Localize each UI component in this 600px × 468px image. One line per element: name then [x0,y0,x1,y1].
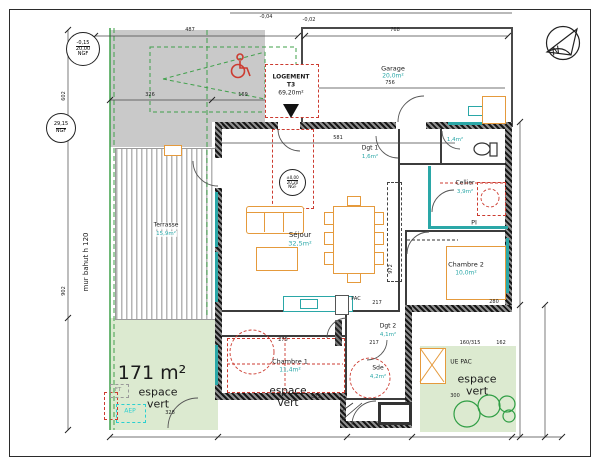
coffee-table [256,247,298,271]
window-ch2-right [506,238,509,293]
chair-right-1 [374,212,384,225]
green-right-l2: vert [466,386,488,399]
window-sejour-left-2 [215,252,218,302]
terrasse-label: Terrasse [153,223,180,230]
pac-unit-box [335,295,349,315]
parking-gray-area [110,30,265,122]
ue-pac-label: UE PAC [450,360,472,367]
wall-ch2-bottom [412,305,512,312]
chambre2-area: 10,0m² [455,271,477,278]
ngf3-l3: NGF [288,185,296,189]
ngf-marker-2: 29,15 NGF [46,113,76,143]
ft-label: FT [115,387,121,393]
green-center-l2: vert [277,397,298,409]
dining-table [333,206,375,274]
mur-bahut-note: mur bahut h 120 [82,233,90,292]
dim-169: 169 [238,93,248,99]
logement-line2: T3 [287,83,295,90]
dim-326: 326 [145,93,155,99]
dgt1-label: Dgt 1 [362,146,379,153]
logement-line1: LOGEMENT [273,75,310,82]
partition-ch2-top [405,230,505,232]
window-wc-top [448,122,482,125]
partition-dgt1-wc [440,129,442,165]
wardrobe-dark [335,320,342,346]
terrasse-area: 15,9m² [155,231,177,237]
dim-217a: 217 [372,301,382,307]
green-left-size: 171 m² [118,363,186,385]
dim-768: 768 [390,28,400,34]
cellier-area: 3,9m² [457,189,473,195]
partition-ch1-right [345,312,347,393]
dgt1-area: 1,6m² [362,154,378,160]
dim-972: 972 [388,264,394,274]
green-left-dim: 328 [165,411,175,417]
green-right-dim: 300 [450,394,460,400]
chambre1-area: 11,4m² [279,368,301,375]
dgt2-label: Dgt 2 [380,324,397,331]
chambre1-label: Chambre 1 [272,358,308,365]
dim-487: 487 [185,28,195,34]
sejour-area: 32,5m² [288,240,311,247]
floor-plan: LOGEMENT T3 69,20m² -0,15 20,00 NGF 29,1… [0,0,600,468]
sde-label: Sde [372,366,383,373]
partition-ch2-left [405,230,407,305]
wc-area: 1,4m² [447,137,463,143]
chair-top [347,196,361,206]
chair-left-3 [324,252,334,265]
terrasse-planter [164,145,182,156]
green-center-l1: espace [269,385,306,397]
kitchen-sink [300,299,318,309]
chair-right-3 [374,252,384,265]
ngf1-l3: NGF [78,52,89,57]
terrasse-door-opening [215,158,222,188]
window-ch1-left [215,345,218,385]
dim-217b: 217 [369,341,379,347]
aep-label: AEP [124,409,136,416]
dim-lvl1: -0,04 [260,15,273,21]
pi-label: PI [471,219,477,226]
chambre2-label: Chambre 2 [448,261,484,268]
green-center-dim: 873 [311,395,321,401]
dim-581: 581 [333,136,343,142]
chair-left-2 [324,232,334,245]
sofa-back-line [246,212,302,213]
garage-storage [482,96,506,124]
cellier-label: Cellier [455,181,474,188]
parking-gray-area-lower [110,122,212,147]
pac-label: PAC [351,297,361,303]
sde-area: 4,2m² [370,374,386,380]
window-sejour-left-1 [215,192,218,247]
logement-area: 69,20m² [278,91,303,98]
dim-756: 756 [385,81,395,87]
chair-bottom [347,273,361,283]
dim-lvl2: -0,02 [303,18,316,24]
dim-280: 280 [489,300,499,306]
sejour-label: Séjour [289,231,311,239]
dim-160-315: 160/315 [460,341,481,347]
sofa-divider-2 [283,212,284,232]
cellier-wall-bottom [428,226,508,229]
dgt2-area: 4,1m² [380,332,396,338]
washbasin [378,402,412,425]
partition-dgt1-bottom [398,163,505,165]
cellier-wall-left [428,166,431,228]
ngf-marker-1: -0,15 20,00 NGF [66,32,100,66]
partition-sde-bottom [345,398,405,400]
dim-902: 902 [61,286,67,296]
chair-left-1 [324,212,334,225]
ngf2-l2: NGF [56,128,67,134]
cellier-appliance-dashed [477,182,506,216]
dim-275: 275 [278,338,288,344]
entry-door-opening [278,122,300,129]
ngf-marker-3: ±0,00 20,20 NGF [279,169,306,196]
chair-right-2 [374,232,384,245]
dim-162: 162 [496,341,506,347]
sofa [246,206,304,234]
dim-602: 602 [61,91,67,101]
garage-door-opening [396,122,426,129]
ue-pac-box [420,348,446,384]
sofa-divider-1 [264,212,265,232]
entry-arrow [283,104,299,118]
